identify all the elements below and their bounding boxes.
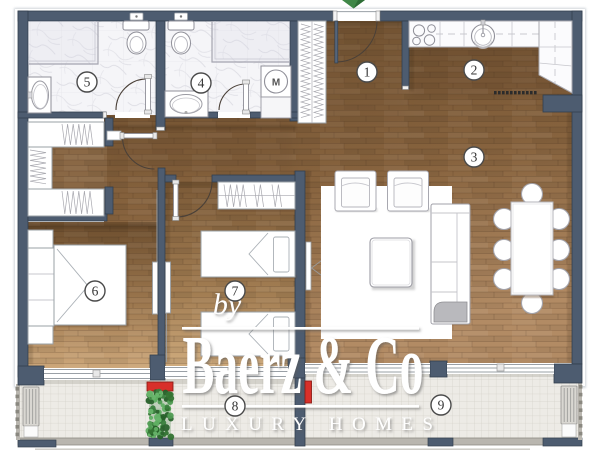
svg-text:6: 6	[92, 284, 99, 299]
svg-text:7: 7	[232, 284, 239, 299]
svg-text:Baerz & Co: Baerz & Co	[183, 320, 424, 412]
svg-text:8: 8	[232, 399, 239, 414]
svg-text:4: 4	[198, 76, 205, 91]
svg-text:9: 9	[438, 398, 445, 413]
svg-text:5: 5	[84, 75, 91, 90]
svg-text:M: M	[272, 78, 280, 89]
svg-text:1: 1	[364, 65, 371, 80]
svg-text:2: 2	[471, 63, 478, 78]
svg-text:3: 3	[471, 150, 478, 165]
